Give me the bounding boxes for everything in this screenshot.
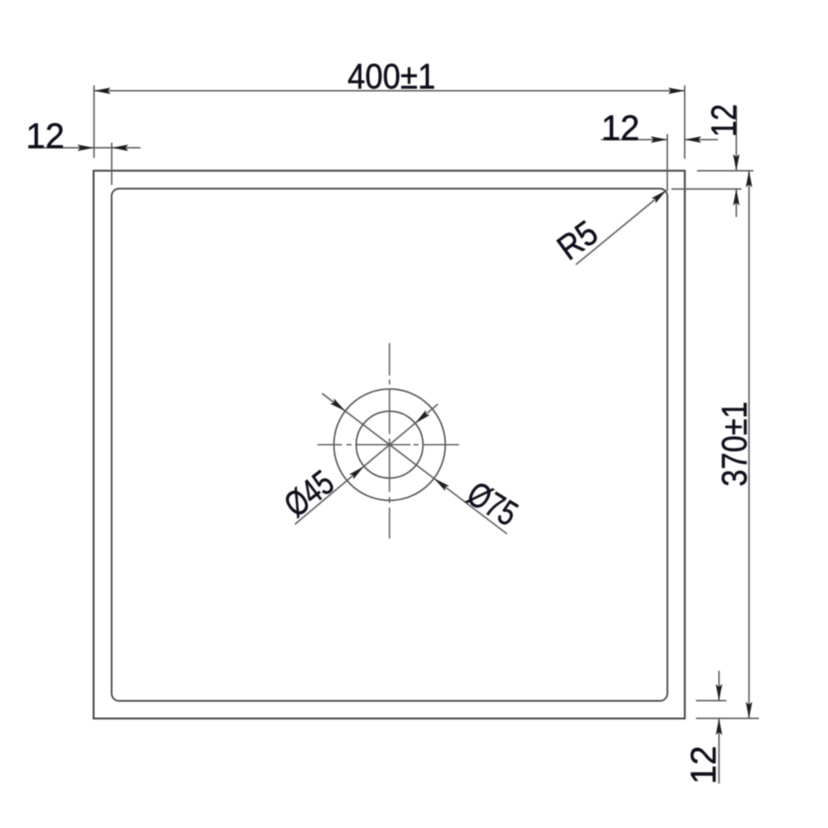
- svg-text:12: 12: [26, 117, 65, 156]
- svg-text:12: 12: [705, 104, 744, 137]
- svg-text:400±1: 400±1: [348, 58, 436, 97]
- svg-text:12: 12: [601, 109, 640, 148]
- svg-text:370±1: 370±1: [715, 402, 754, 487]
- svg-text:12: 12: [685, 746, 724, 785]
